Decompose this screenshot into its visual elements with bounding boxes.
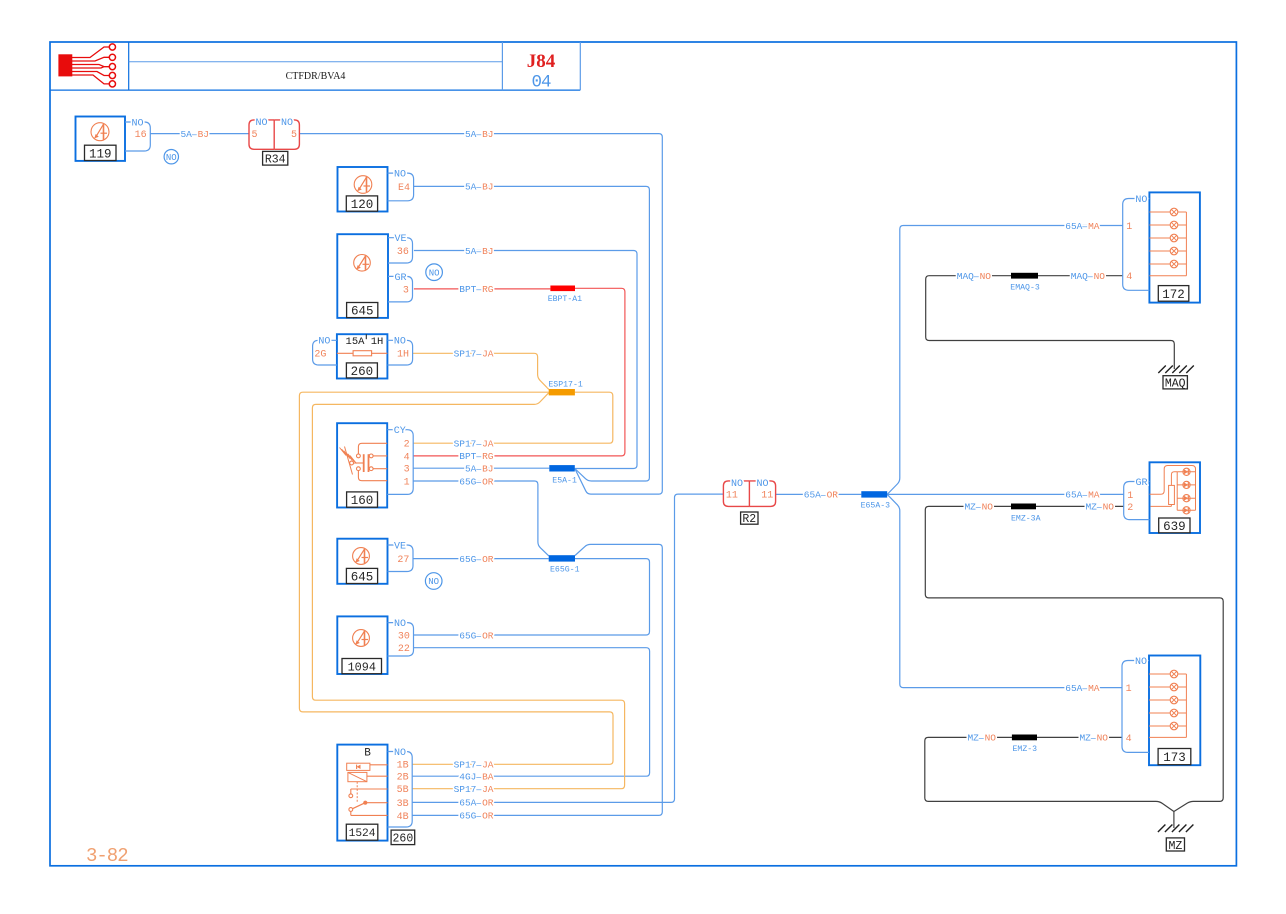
svg-text:645: 645 [351, 305, 374, 319]
svg-text:EMZ-3A: EMZ-3A [1011, 514, 1041, 523]
svg-text:65A—MA: 65A—MA [1065, 221, 1100, 232]
svg-text:E4: E4 [398, 183, 410, 194]
svg-text:3B: 3B [397, 799, 409, 810]
svg-text:3-82: 3-82 [86, 845, 128, 867]
svg-text:MZ: MZ [1168, 840, 1182, 853]
svg-text:645: 645 [351, 570, 374, 584]
svg-text:NO: NO [429, 268, 440, 278]
svg-text:120: 120 [351, 198, 374, 212]
svg-text:1H: 1H [371, 336, 384, 348]
svg-text:EBPT-A1: EBPT-A1 [548, 295, 582, 304]
svg-text:5A—BJ: 5A—BJ [180, 129, 209, 140]
svg-text:4B: 4B [397, 812, 409, 823]
svg-text:VE: VE [394, 541, 406, 552]
svg-text:260: 260 [351, 365, 374, 379]
svg-text:CY: CY [394, 426, 406, 437]
svg-text:1B: 1B [397, 761, 409, 772]
svg-text:1: 1 [1127, 491, 1133, 502]
svg-text:172: 172 [1162, 288, 1185, 302]
svg-text:SP17—JA: SP17—JA [454, 439, 494, 450]
svg-text:1094: 1094 [348, 660, 376, 674]
svg-text:2: 2 [404, 440, 410, 451]
svg-text:E65A-3: E65A-3 [861, 502, 891, 511]
svg-text:22: 22 [398, 644, 410, 655]
svg-text:NO: NO [731, 479, 743, 490]
svg-text:NO: NO [394, 748, 406, 759]
svg-text:160: 160 [351, 494, 374, 508]
svg-text:30: 30 [398, 631, 410, 642]
svg-text:E65G-1: E65G-1 [550, 566, 580, 575]
svg-text:NO: NO [1135, 195, 1147, 206]
svg-text:3: 3 [403, 285, 409, 296]
svg-text:NO: NO [281, 118, 293, 129]
svg-text:SP17—JA: SP17—JA [454, 760, 494, 771]
svg-text:5: 5 [252, 130, 258, 141]
svg-text:5: 5 [291, 130, 297, 141]
svg-text:4: 4 [1126, 734, 1132, 745]
svg-text:260: 260 [393, 832, 414, 845]
svg-text:NO: NO [394, 619, 406, 630]
svg-text:27: 27 [397, 555, 409, 566]
svg-text:SP17—JA: SP17—JA [454, 349, 494, 360]
svg-text:65A—OR: 65A—OR [459, 798, 494, 809]
svg-text:5A—BJ: 5A—BJ [465, 464, 494, 475]
svg-text:BPT—RG: BPT—RG [459, 451, 494, 462]
svg-text:5A—BJ: 5A—BJ [465, 129, 494, 140]
svg-text:MZ—NO: MZ—NO [967, 733, 996, 744]
svg-text:65A—OR: 65A—OR [804, 490, 839, 501]
svg-text:NO: NO [166, 153, 177, 163]
svg-text:4: 4 [1126, 272, 1132, 283]
svg-text:65G—OR: 65G—OR [459, 554, 494, 565]
svg-text:R2: R2 [742, 513, 756, 526]
svg-text:NO: NO [318, 337, 330, 348]
svg-text:2B: 2B [397, 773, 409, 784]
svg-text:65A—MA: 65A—MA [1065, 490, 1100, 501]
svg-text:5B: 5B [397, 785, 409, 796]
svg-text:J84: J84 [527, 51, 556, 72]
svg-text:1H: 1H [397, 350, 409, 361]
svg-text:5A—BJ: 5A—BJ [465, 182, 494, 193]
svg-text:3: 3 [404, 465, 410, 476]
svg-text:MAQ—NO: MAQ—NO [957, 271, 992, 282]
svg-text:NO: NO [394, 170, 406, 181]
svg-text:GR: GR [1135, 478, 1147, 489]
svg-text:5A—BJ: 5A—BJ [465, 246, 494, 257]
svg-text:65G—OR: 65G—OR [459, 476, 494, 487]
svg-text:VE: VE [395, 234, 407, 245]
svg-text:MZ—NO: MZ—NO [964, 502, 993, 513]
svg-text:GR: GR [395, 273, 407, 284]
svg-text:BPT—RG: BPT—RG [459, 284, 494, 295]
svg-text:65G—OR: 65G—OR [459, 630, 494, 641]
svg-text:11: 11 [761, 491, 773, 502]
svg-text:MZ—NO: MZ—NO [1085, 502, 1114, 513]
svg-text:1: 1 [1126, 684, 1132, 695]
svg-text:36: 36 [397, 247, 409, 258]
svg-text:119: 119 [89, 147, 112, 161]
svg-text:NO: NO [428, 577, 439, 587]
svg-text:1: 1 [404, 477, 410, 488]
svg-text:173: 173 [1163, 751, 1186, 765]
svg-text:E5A-1: E5A-1 [552, 477, 577, 486]
svg-text:639: 639 [1163, 520, 1186, 534]
svg-text:16: 16 [135, 130, 147, 141]
svg-text:NO: NO [1135, 657, 1147, 668]
svg-text:MAQ—NO: MAQ—NO [1071, 271, 1106, 282]
svg-text:NO: NO [132, 118, 144, 129]
svg-text:2G: 2G [314, 350, 326, 361]
svg-text:4: 4 [404, 452, 410, 463]
svg-text:65G—OR: 65G—OR [459, 811, 494, 822]
svg-text:EMZ-3: EMZ-3 [1013, 745, 1038, 754]
svg-text:ESP17-1: ESP17-1 [548, 380, 582, 389]
svg-text:2: 2 [1127, 503, 1133, 514]
svg-text:1: 1 [1126, 222, 1132, 233]
svg-text:NO: NO [756, 479, 768, 490]
svg-text:B: B [364, 748, 371, 760]
svg-text:EMAQ-3: EMAQ-3 [1010, 283, 1040, 292]
svg-text:MZ—NO: MZ—NO [1079, 733, 1108, 744]
svg-text:CTFDR/BVA4: CTFDR/BVA4 [286, 71, 346, 82]
svg-text:4GJ—BA: 4GJ—BA [459, 772, 494, 783]
svg-text:R34: R34 [265, 153, 286, 166]
svg-text:04: 04 [531, 73, 551, 93]
svg-text:SP17—JA: SP17—JA [454, 784, 494, 795]
svg-text:NO: NO [394, 337, 406, 348]
svg-text:1524: 1524 [349, 828, 376, 840]
svg-text:65A—MA: 65A—MA [1065, 683, 1100, 694]
svg-text:MAQ: MAQ [1165, 378, 1186, 391]
svg-text:11: 11 [726, 491, 738, 502]
svg-text:NO: NO [255, 118, 267, 129]
svg-text:15A: 15A [346, 336, 366, 348]
